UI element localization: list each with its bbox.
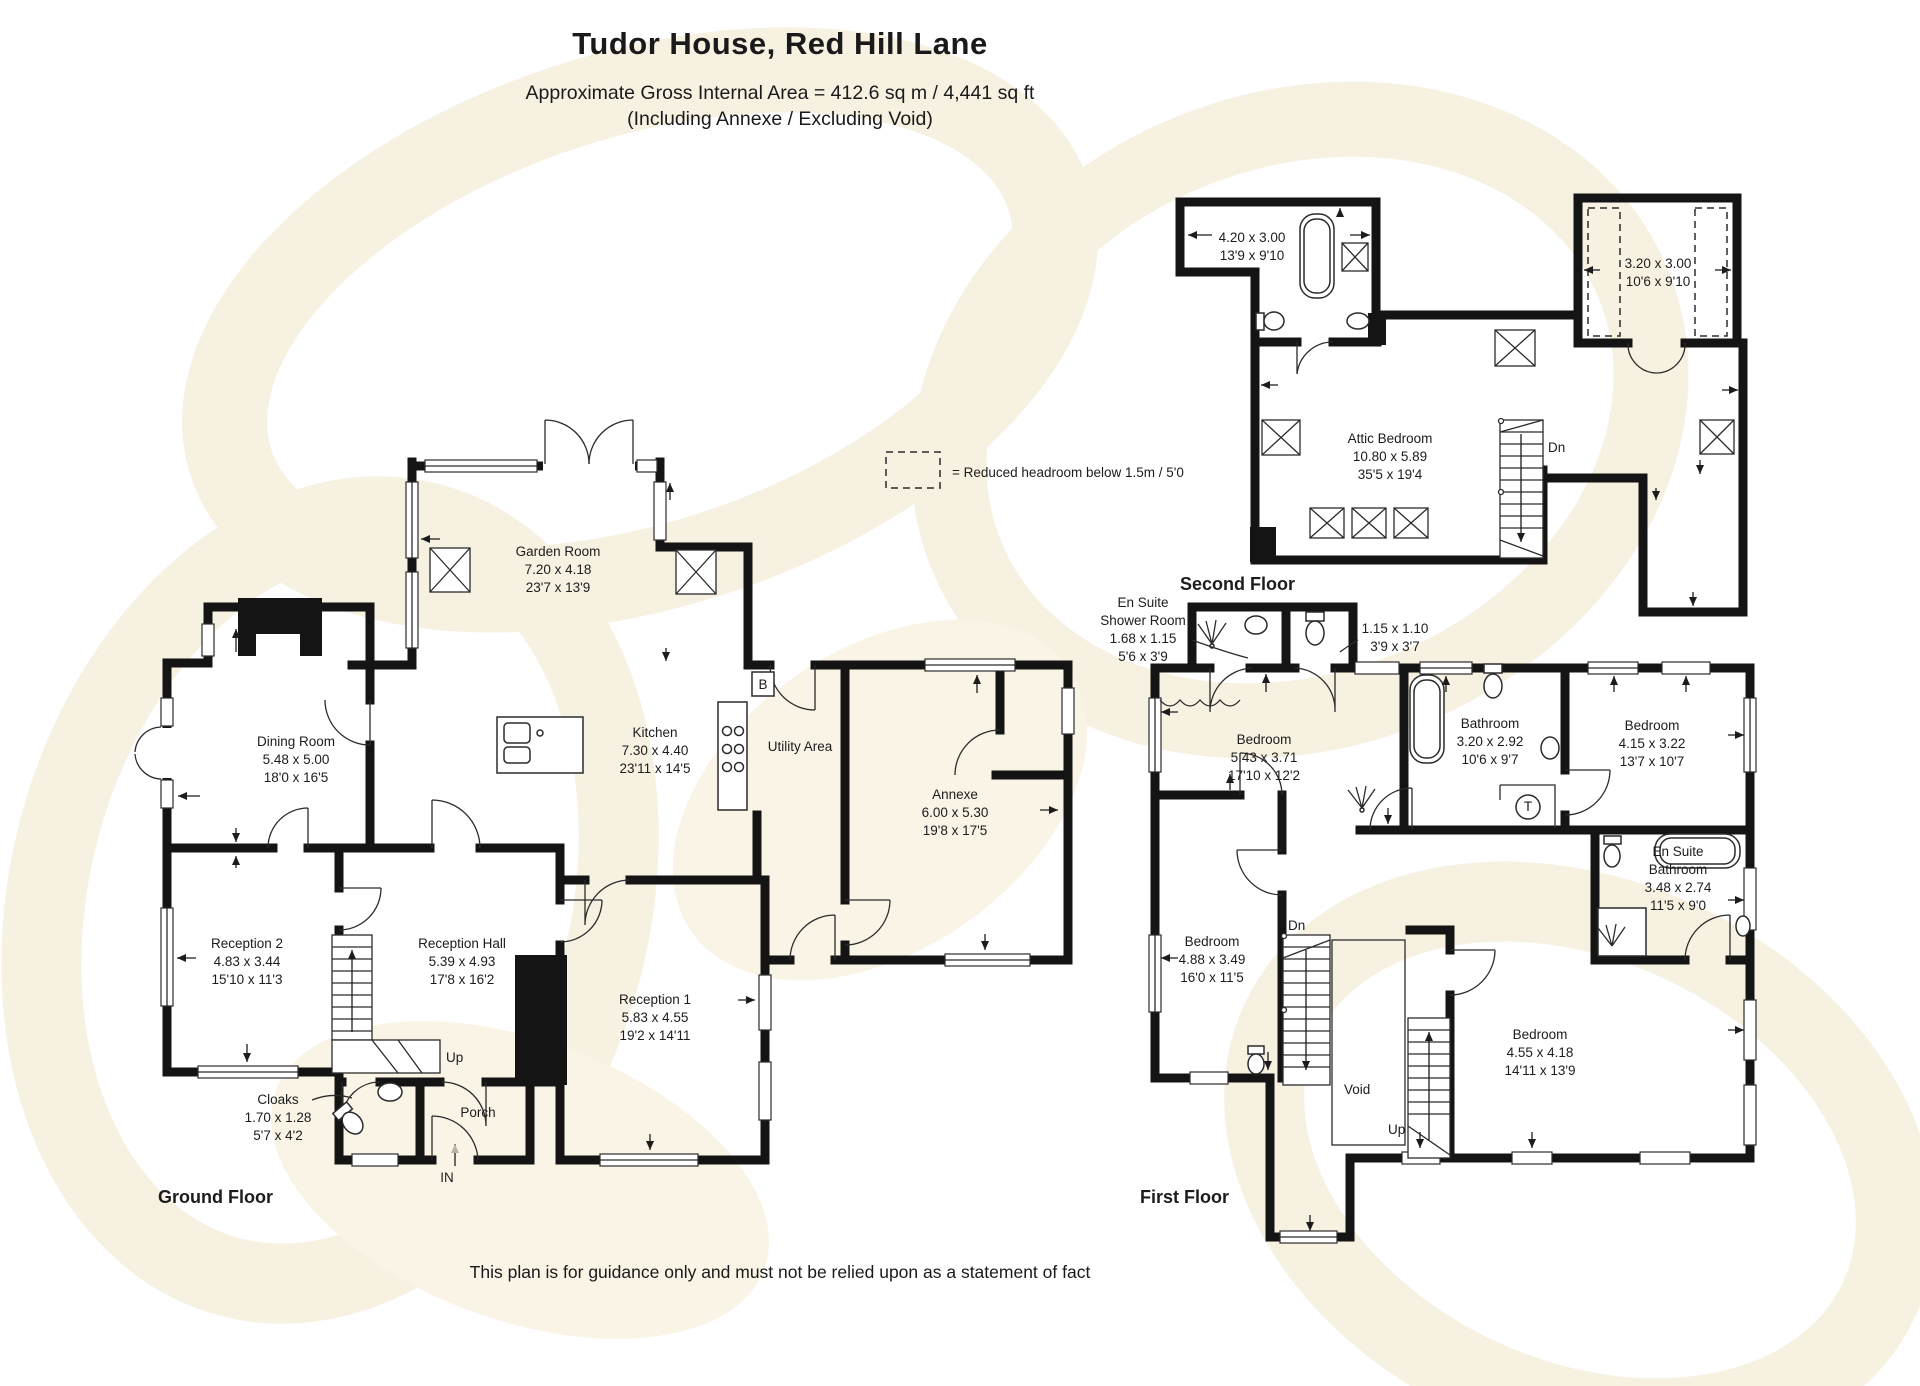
floorplan-drawing: = Reduced headroom below 1.5m / 5'0: [0, 0, 1920, 1386]
basin-icon: [1347, 313, 1369, 329]
room-utility-label: Utility Area: [768, 739, 833, 754]
room-ensuite-bathroom: En Suite Bathroom 3.48 x 2.74 11'5 x 9'0: [1645, 844, 1712, 913]
svg-text:5'6 x 3'9: 5'6 x 3'9: [1118, 649, 1167, 664]
legend-label: = Reduced headroom below 1.5m / 5'0: [952, 465, 1184, 480]
svg-text:B: B: [758, 677, 767, 692]
svg-text:Reception Hall: Reception Hall: [418, 936, 506, 951]
ground-floor-title: Ground Floor: [158, 1187, 273, 1207]
svg-text:6.00 x 5.30: 6.00 x 5.30: [922, 805, 989, 820]
room-bedroom3: Bedroom 4.88 x 3.49 16'0 x 11'5: [1179, 934, 1246, 985]
svg-text:3.48 x 2.74: 3.48 x 2.74: [1645, 880, 1712, 895]
stairs-up-label: Up: [446, 1050, 463, 1065]
svg-text:Kitchen: Kitchen: [632, 725, 677, 740]
svg-text:En Suite: En Suite: [1117, 595, 1168, 610]
ground-doors: [135, 420, 1000, 1160]
room-porch-label: Porch: [460, 1105, 495, 1120]
svg-text:10'6 x 9'7: 10'6 x 9'7: [1462, 752, 1519, 767]
svg-text:17'8 x 16'2: 17'8 x 16'2: [430, 972, 494, 987]
svg-text:3'9 x 3'7: 3'9 x 3'7: [1370, 639, 1419, 654]
room-eaves-store: 3.20 x 3.00 10'6 x 9'10: [1625, 256, 1692, 289]
svg-text:7.20 x 4.18: 7.20 x 4.18: [525, 562, 592, 577]
room-bathroom: Bathroom 3.20 x 2.92 10'6 x 9'7: [1457, 716, 1524, 767]
shower-icon: [1348, 786, 1375, 812]
entrance-label: IN: [440, 1170, 454, 1185]
svg-text:En Suite: En Suite: [1652, 844, 1703, 859]
svg-text:Reception 2: Reception 2: [211, 936, 283, 951]
svg-text:Annexe: Annexe: [932, 787, 978, 802]
toilet-icon: [1248, 1046, 1264, 1074]
second-floor-title: Second Floor: [1180, 574, 1295, 594]
ground-room-labels: Garden Room 7.20 x 4.18 23'7 x 13'9 Kitc…: [211, 544, 988, 1185]
room-bedroom4: Bedroom 4.55 x 4.18 14'11 x 13'9: [1505, 1027, 1576, 1078]
svg-text:18'0 x 16'5: 18'0 x 16'5: [264, 770, 328, 785]
toilet-icon: [1256, 312, 1284, 330]
room-bedroom1: Bedroom 5.43 x 3.71 17'10 x 12'2: [1228, 732, 1300, 783]
room-reception-hall: Reception Hall 5.39 x 4.93 17'8 x 16'2: [418, 936, 506, 987]
first-walls: [1155, 607, 1750, 1237]
hob-icon: [718, 702, 747, 810]
svg-text:5.48 x 5.00: 5.48 x 5.00: [263, 752, 330, 767]
svg-text:Bedroom: Bedroom: [1625, 718, 1680, 733]
first-fixtures: T: [1160, 612, 1750, 1074]
first-stairs: [1282, 934, 1451, 1159]
svg-text:Bedroom: Bedroom: [1237, 732, 1292, 747]
svg-text:4.20 x 3.00: 4.20 x 3.00: [1219, 230, 1286, 245]
floorplan-page: Tudor House, Red Hill Lane Approximate G…: [0, 0, 1920, 1386]
svg-text:1.70 x 1.28: 1.70 x 1.28: [245, 1110, 312, 1125]
svg-text:13'7 x 10'7: 13'7 x 10'7: [1620, 754, 1684, 769]
void-label: Void: [1344, 1082, 1370, 1097]
disclaimer: This plan is for guidance only and must …: [180, 1262, 1380, 1283]
svg-text:1.68 x 1.15: 1.68 x 1.15: [1110, 631, 1177, 646]
svg-text:17'10 x 12'2: 17'10 x 12'2: [1228, 768, 1300, 783]
stairs-up-label: Up: [1388, 1122, 1405, 1137]
svg-text:13'9 x 9'10: 13'9 x 9'10: [1220, 248, 1284, 263]
svg-text:5.83 x 4.55: 5.83 x 4.55: [622, 1010, 689, 1025]
basin-icon: [1736, 916, 1750, 936]
bath-icon: [1410, 675, 1444, 763]
svg-text:Garden Room: Garden Room: [516, 544, 601, 559]
room-reception2: Reception 2 4.83 x 3.44 15'10 x 11'3: [211, 936, 283, 987]
svg-text:Cloaks: Cloaks: [257, 1092, 299, 1107]
toilet-icon: [1484, 664, 1502, 698]
room-kitchen: Kitchen 7.30 x 4.40 23'11 x 14'5: [620, 725, 691, 776]
reduced-headroom-icon: [886, 452, 940, 488]
stairs-dn-label: Dn: [1548, 440, 1565, 455]
stairs-dn-label: Dn: [1288, 918, 1305, 933]
tank-label: T: [1524, 799, 1532, 814]
room-annexe: Annexe 6.00 x 5.30 19'8 x 17'5: [922, 787, 989, 838]
ground-floor-plan: B: [135, 420, 1074, 1207]
svg-text:Bathroom: Bathroom: [1461, 716, 1520, 731]
svg-text:4.88 x 3.49: 4.88 x 3.49: [1179, 952, 1246, 967]
svg-text:Shower Room: Shower Room: [1100, 613, 1186, 628]
svg-text:11'5 x 9'0: 11'5 x 9'0: [1650, 898, 1706, 913]
svg-text:19'2 x 14'11: 19'2 x 14'11: [620, 1028, 691, 1043]
first-floor-title: First Floor: [1140, 1187, 1229, 1207]
svg-text:Reception 1: Reception 1: [619, 992, 691, 1007]
room-reception1: Reception 1 5.83 x 4.55 19'2 x 14'11: [619, 992, 691, 1043]
room-garden-room: Garden Room 7.20 x 4.18 23'7 x 13'9: [516, 544, 601, 595]
second-stairs: [1499, 419, 1544, 559]
room-attic-bedroom: Attic Bedroom 10.80 x 5.89 35'5 x 19'4: [1348, 431, 1433, 482]
svg-text:7.30 x 4.40: 7.30 x 4.40: [622, 743, 689, 758]
svg-text:Bedroom: Bedroom: [1185, 934, 1240, 949]
svg-text:Dining Room: Dining Room: [257, 734, 335, 749]
wardrobe-rail-icon: [1160, 700, 1240, 706]
svg-text:16'0 x 11'5: 16'0 x 11'5: [1180, 970, 1243, 985]
airing-cupboard: T: [1500, 785, 1555, 828]
basin-icon: [1541, 737, 1559, 759]
svg-text:5.39 x 4.93: 5.39 x 4.93: [429, 954, 496, 969]
svg-text:23'11 x 14'5: 23'11 x 14'5: [620, 761, 691, 776]
svg-text:10.80 x 5.89: 10.80 x 5.89: [1353, 449, 1427, 464]
svg-text:4.15 x 3.22: 4.15 x 3.22: [1619, 736, 1686, 751]
toilet-icon: [1306, 612, 1324, 645]
svg-text:1.15 x 1.10: 1.15 x 1.10: [1362, 621, 1429, 636]
ground-stairs: [332, 935, 440, 1073]
room-bedroom2: Bedroom 4.15 x 3.22 13'7 x 10'7: [1619, 718, 1686, 769]
svg-text:15'10 x 11'3: 15'10 x 11'3: [212, 972, 283, 987]
svg-text:19'8 x 17'5: 19'8 x 17'5: [923, 823, 987, 838]
bath-icon: [1300, 214, 1334, 298]
shower-icon: [1598, 908, 1646, 956]
svg-text:5'7 x 4'2: 5'7 x 4'2: [253, 1128, 302, 1143]
reduced-headroom-zones: [1588, 208, 1727, 336]
svg-text:4.55 x 4.18: 4.55 x 4.18: [1507, 1045, 1574, 1060]
kitchen-island: [497, 717, 583, 773]
basin-icon: [1245, 616, 1267, 634]
basin-icon: [378, 1083, 402, 1101]
svg-text:35'5 x 19'4: 35'5 x 19'4: [1358, 467, 1423, 482]
svg-text:5.43 x 3.71: 5.43 x 3.71: [1231, 750, 1298, 765]
legend: = Reduced headroom below 1.5m / 5'0: [886, 452, 1184, 488]
first-floor-plan: T: [1100, 595, 1756, 1243]
reception-chimney: [515, 955, 567, 1085]
sink-icon: [504, 723, 530, 743]
svg-text:10'6 x 9'10: 10'6 x 9'10: [1626, 274, 1690, 289]
boiler-icon: B: [752, 672, 774, 696]
svg-text:4.83 x 3.44: 4.83 x 3.44: [214, 954, 281, 969]
svg-text:Attic Bedroom: Attic Bedroom: [1348, 431, 1433, 446]
room-second-bathroom: 4.20 x 3.00 13'9 x 9'10: [1219, 230, 1286, 263]
svg-text:23'7 x 13'9: 23'7 x 13'9: [526, 580, 590, 595]
svg-text:3.20 x 2.92: 3.20 x 2.92: [1457, 734, 1524, 749]
svg-text:Bathroom: Bathroom: [1649, 862, 1708, 877]
second-floor-plan: 4.20 x 3.00 13'9 x 9'10 3.20 x 3.00 10'6…: [1180, 198, 1743, 612]
svg-text:Bedroom: Bedroom: [1513, 1027, 1568, 1042]
room-dining: Dining Room 5.48 x 5.00 18'0 x 16'5: [257, 734, 335, 785]
svg-text:3.20 x 3.00: 3.20 x 3.00: [1625, 256, 1692, 271]
toilet-icon: [1604, 836, 1621, 867]
svg-text:14'11 x 13'9: 14'11 x 13'9: [1505, 1063, 1576, 1078]
